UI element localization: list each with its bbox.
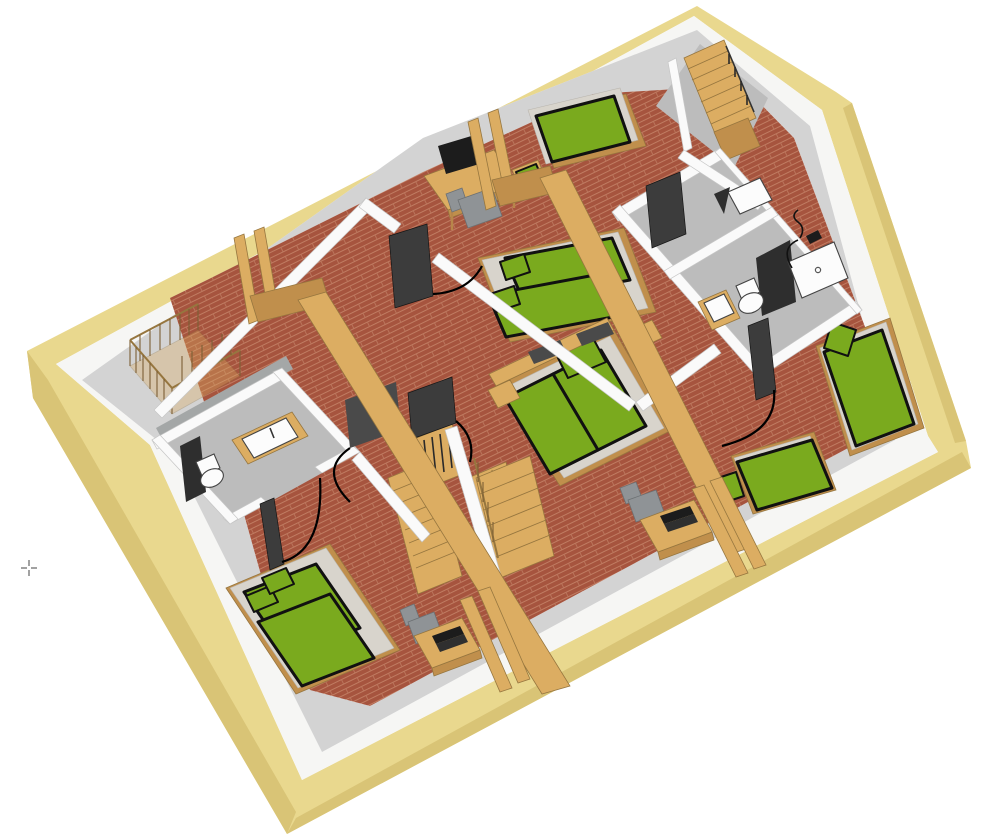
screenshot-canvas (0, 0, 1000, 839)
floorplan-3d-view[interactable] (0, 0, 1000, 839)
cursor-crosshair (21, 560, 37, 576)
door-leaf (389, 224, 433, 308)
door-leaf (646, 172, 686, 248)
